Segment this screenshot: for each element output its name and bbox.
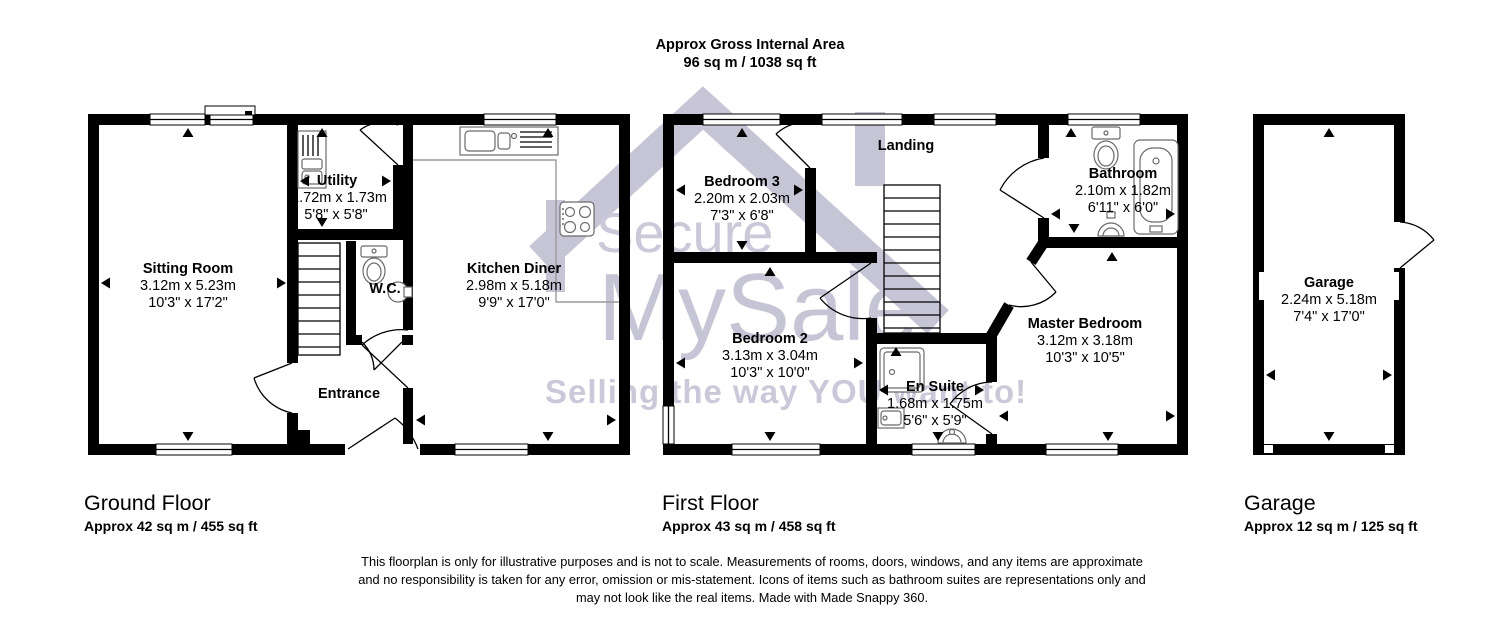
room-label-sitting-room: Sitting Room 3.12m x 5.23m 10'3" x 17'2"	[140, 261, 236, 311]
svg-text:Bedroom 3: Bedroom 3	[704, 174, 780, 190]
room-label-master-bedroom: Master Bedroom 3.12m x 3.18m 10'3" x 10'…	[1028, 316, 1142, 366]
svg-text:Bathroom: Bathroom	[1089, 166, 1157, 182]
room-label-bedroom2: Bedroom 2 3.13m x 3.04m 10'3" x 10'0"	[722, 331, 818, 381]
svg-text:Master Bedroom: Master Bedroom	[1028, 316, 1142, 332]
disclaimer-line3: may not look like the real items. Made w…	[576, 590, 928, 605]
room-label-bathroom: Bathroom 2.10m x 1.82m 6'11" x 6'0"	[1075, 166, 1171, 216]
disclaimer-line2: and no responsibility is taken for any e…	[358, 572, 1145, 587]
svg-text:7'4" x 17'0": 7'4" x 17'0"	[1293, 309, 1364, 325]
toilet-icon	[361, 246, 387, 284]
garage-plan: Garage 2.24m x 5.18m 7'4" x 17'0"	[1253, 114, 1434, 455]
svg-text:3.12m x 5.23m: 3.12m x 5.23m	[140, 278, 236, 294]
kitchen-sink-icon	[460, 127, 558, 155]
svg-text:10'3" x 10'0": 10'3" x 10'0"	[730, 365, 810, 381]
svg-text:1.72m x 1.73m: 1.72m x 1.73m	[291, 190, 387, 206]
svg-text:2.24m x 5.18m: 2.24m x 5.18m	[1281, 292, 1377, 308]
svg-text:10'3" x 10'5": 10'3" x 10'5"	[1045, 350, 1125, 366]
door-arc	[1400, 222, 1434, 268]
ground-floor-area: Approx 42 sq m / 455 sq ft	[84, 518, 258, 534]
svg-text:Bedroom 2: Bedroom 2	[732, 331, 808, 347]
svg-text:2.10m x 1.82m: 2.10m x 1.82m	[1075, 183, 1171, 199]
disclaimer: This floorplan is only for illustrative …	[358, 554, 1145, 605]
svg-text:2.98m x 5.18m: 2.98m x 5.18m	[466, 278, 562, 294]
toilet-icon	[1092, 127, 1120, 169]
stairs-icon	[298, 243, 340, 355]
svg-text:W.C.: W.C.	[369, 281, 400, 297]
svg-text:Utility: Utility	[317, 173, 357, 189]
svg-text:Garage: Garage	[1304, 275, 1354, 291]
svg-text:Sitting Room: Sitting Room	[143, 261, 233, 277]
room-label-kitchen-diner: Kitchen Diner 2.98m x 5.18m 9'9" x 17'0"	[466, 261, 562, 311]
header-title: Approx Gross Internal Area	[656, 37, 846, 53]
svg-text:Entrance: Entrance	[318, 386, 380, 402]
svg-text:10'3" x 17'2": 10'3" x 17'2"	[148, 295, 228, 311]
svg-text:7'3" x 6'8": 7'3" x 6'8"	[710, 208, 773, 224]
svg-text:3.12m x 3.18m: 3.12m x 3.18m	[1037, 333, 1133, 349]
garage-area: Approx 12 sq m / 125 sq ft	[1244, 518, 1418, 534]
ground-floor-title: Ground Floor	[84, 491, 211, 515]
svg-text:Landing: Landing	[878, 138, 934, 154]
first-floor-title: First Floor	[662, 491, 759, 515]
svg-text:6'11" x 6'0": 6'11" x 6'0"	[1088, 200, 1158, 216]
floor-titles: Ground Floor Approx 42 sq m / 455 sq ft …	[84, 491, 1418, 534]
svg-text:2.20m x 2.03m: 2.20m x 2.03m	[694, 191, 790, 207]
floorplan-canvas: Secure MySale Selling the way YOU want t…	[0, 0, 1500, 620]
svg-text:5'6" x 5'9": 5'6" x 5'9"	[903, 413, 966, 429]
header-subtitle: 96 sq m / 1038 sq ft	[684, 55, 817, 71]
garage-title: Garage	[1244, 491, 1316, 515]
ensuite-basin-icon	[938, 429, 966, 443]
svg-text:En Suite: En Suite	[906, 379, 964, 395]
room-label-entrance: Entrance	[318, 386, 380, 402]
room-label-wc: W.C.	[369, 281, 400, 297]
svg-text:Kitchen Diner: Kitchen Diner	[467, 261, 562, 277]
svg-text:9'9" x 17'0": 9'9" x 17'0"	[478, 295, 549, 311]
svg-text:3.13m x 3.04m: 3.13m x 3.04m	[722, 348, 818, 364]
disclaimer-line1: This floorplan is only for illustrative …	[361, 554, 1143, 569]
room-label-landing: Landing	[878, 138, 934, 154]
svg-text:1.68m x 1.75m: 1.68m x 1.75m	[887, 396, 983, 412]
svg-text:5'8" x 5'8": 5'8" x 5'8"	[304, 207, 367, 223]
floorplan-svg: Secure MySale Selling the way YOU want t…	[0, 0, 1500, 620]
hob-icon	[560, 202, 594, 236]
room-label-garage: Garage 2.24m x 5.18m 7'4" x 17'0"	[1281, 275, 1377, 325]
first-floor-area: Approx 43 sq m / 458 sq ft	[662, 518, 836, 534]
